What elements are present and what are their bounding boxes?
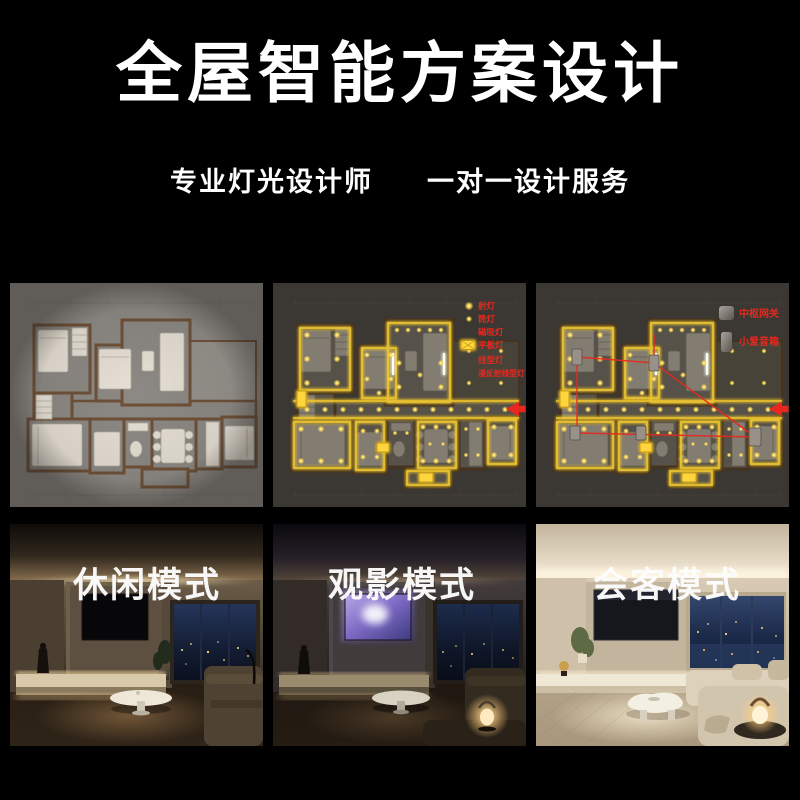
lighting-plan-panel: 射灯 筒灯 磁吸灯 平板灯 线型灯 漫反射线型灯 (273, 283, 526, 507)
legend-label: 射灯 (477, 301, 496, 311)
legend-label: 磁吸灯 (478, 327, 504, 337)
movie-mode-panel: 观影模式 (273, 524, 526, 746)
scene-modes-row: 休闲模式 (10, 524, 790, 746)
subtitle: 专业灯光设计师 一对一设计服务 (0, 160, 800, 199)
legend-label: 线型灯 (478, 355, 504, 365)
device-plan-panel: 中枢网关 小爱音箱 (536, 283, 789, 507)
media-cabinet (536, 674, 696, 686)
mode-label: 观影模式 (328, 566, 476, 605)
mode-label: 休闲模式 (72, 566, 221, 605)
movie-mode-photo: 观影模式 (273, 524, 526, 746)
mode-label: 会客模式 (593, 565, 741, 605)
lighting-plan-image: 射灯 筒灯 磁吸灯 平板灯 线型灯 漫反射线型灯 (273, 283, 526, 507)
page-title: 全屋智能方案设计 (0, 36, 800, 112)
poster-canvas: 全屋智能方案设计 专业灯光设计师 一对一设计服务 射灯 筒灯 (0, 0, 800, 800)
legend-label: 筒灯 (478, 314, 496, 324)
leisure-mode-panel: 休闲模式 (10, 524, 263, 746)
subtitle-right: 一对一设计服务 (427, 160, 630, 199)
media-cabinet (279, 675, 429, 687)
guest-mode-panel: 会客模式 (536, 524, 789, 746)
hub-gateway-icon (719, 306, 734, 320)
spotlight-dot-icon (465, 302, 474, 311)
legend-label: 小爱音箱 (738, 335, 779, 348)
leisure-mode-photo: 休闲模式 (10, 524, 263, 746)
subtitle-left: 专业灯光设计师 (170, 160, 373, 199)
guest-mode-photo: 会客模式 (536, 524, 789, 746)
legend-label: 漫反射线型灯 (478, 368, 525, 378)
base-floorplan-panel (10, 283, 263, 507)
legend-label: 平板灯 (478, 340, 504, 350)
device-plan-image: 中枢网关 小爱音箱 (536, 283, 789, 507)
legend-label: 中枢网关 (739, 307, 779, 320)
smart-speaker-icon (721, 332, 732, 352)
downlight-dot-icon (466, 316, 472, 322)
floorplan-row: 射灯 筒灯 磁吸灯 平板灯 线型灯 漫反射线型灯 (10, 283, 790, 507)
media-cabinet (16, 674, 166, 687)
glowing-lamp (465, 694, 509, 738)
base-floorplan-image (10, 283, 263, 507)
